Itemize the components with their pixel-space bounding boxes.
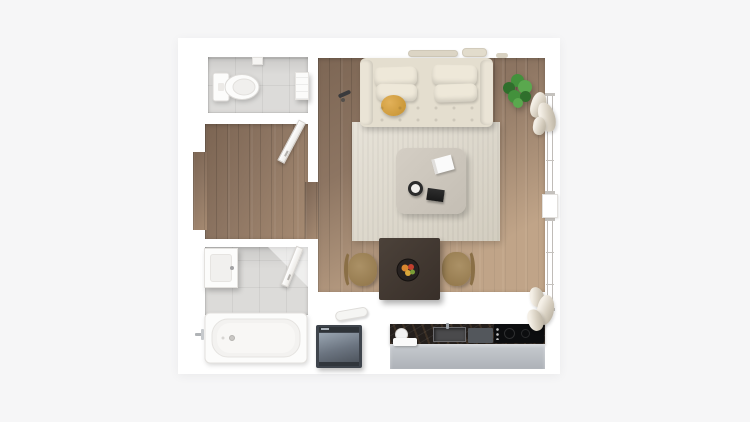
window-frame-cap (545, 218, 555, 221)
wall-shelf-tray-1 (408, 50, 458, 57)
bath-faucet (195, 328, 208, 342)
wc-soap-dish (252, 57, 263, 65)
curtain-top (531, 90, 558, 138)
washer-kickplate (319, 362, 359, 366)
washer-door (319, 333, 359, 362)
cooktop-burner (504, 328, 515, 339)
coffee-table (396, 148, 466, 214)
sofa-armrest-right (480, 60, 493, 125)
cutting-board (468, 328, 493, 343)
bathtub (204, 312, 308, 364)
window-frame-tick (546, 160, 554, 161)
wc-towel (295, 72, 309, 100)
washing-machine (316, 325, 362, 368)
wall-shelf-tray-2 (462, 48, 487, 57)
sofa-cushion (432, 65, 477, 86)
bathroom-vanity (204, 248, 238, 288)
toilet (210, 69, 266, 105)
sofa (360, 58, 493, 127)
fruit-bowl (396, 258, 420, 282)
kitchen-sink (433, 327, 466, 342)
hallway-door-handle (284, 150, 289, 156)
cooktop-knobs (496, 327, 499, 340)
counter-tray (393, 338, 417, 346)
candle-cup (408, 181, 423, 196)
curtain-bottom (528, 287, 557, 333)
floor-plan (0, 0, 750, 422)
window-frame-tick (546, 252, 554, 253)
floor-object (341, 98, 345, 102)
dining-chair-right (440, 250, 473, 288)
vanity-faucet (230, 266, 234, 270)
wall-shelf-tray-3 (496, 53, 508, 58)
kitchen-faucet (446, 323, 449, 329)
window-sill-pier (542, 194, 558, 218)
hallway-living-passage (305, 182, 318, 239)
sofa-armrest-left (360, 60, 373, 125)
kitchen-base-cabinets (390, 344, 545, 369)
black-tray (426, 188, 445, 202)
vanity-basin (210, 254, 232, 282)
washer-display (321, 328, 329, 330)
bathroom-door-handle (287, 274, 291, 280)
window-frame-tick (546, 284, 554, 285)
sofa-cushion (434, 83, 478, 102)
dining-chair-left (346, 251, 379, 288)
sofa-seat-tufting (373, 102, 480, 125)
hallway-entry-recess (193, 152, 207, 230)
